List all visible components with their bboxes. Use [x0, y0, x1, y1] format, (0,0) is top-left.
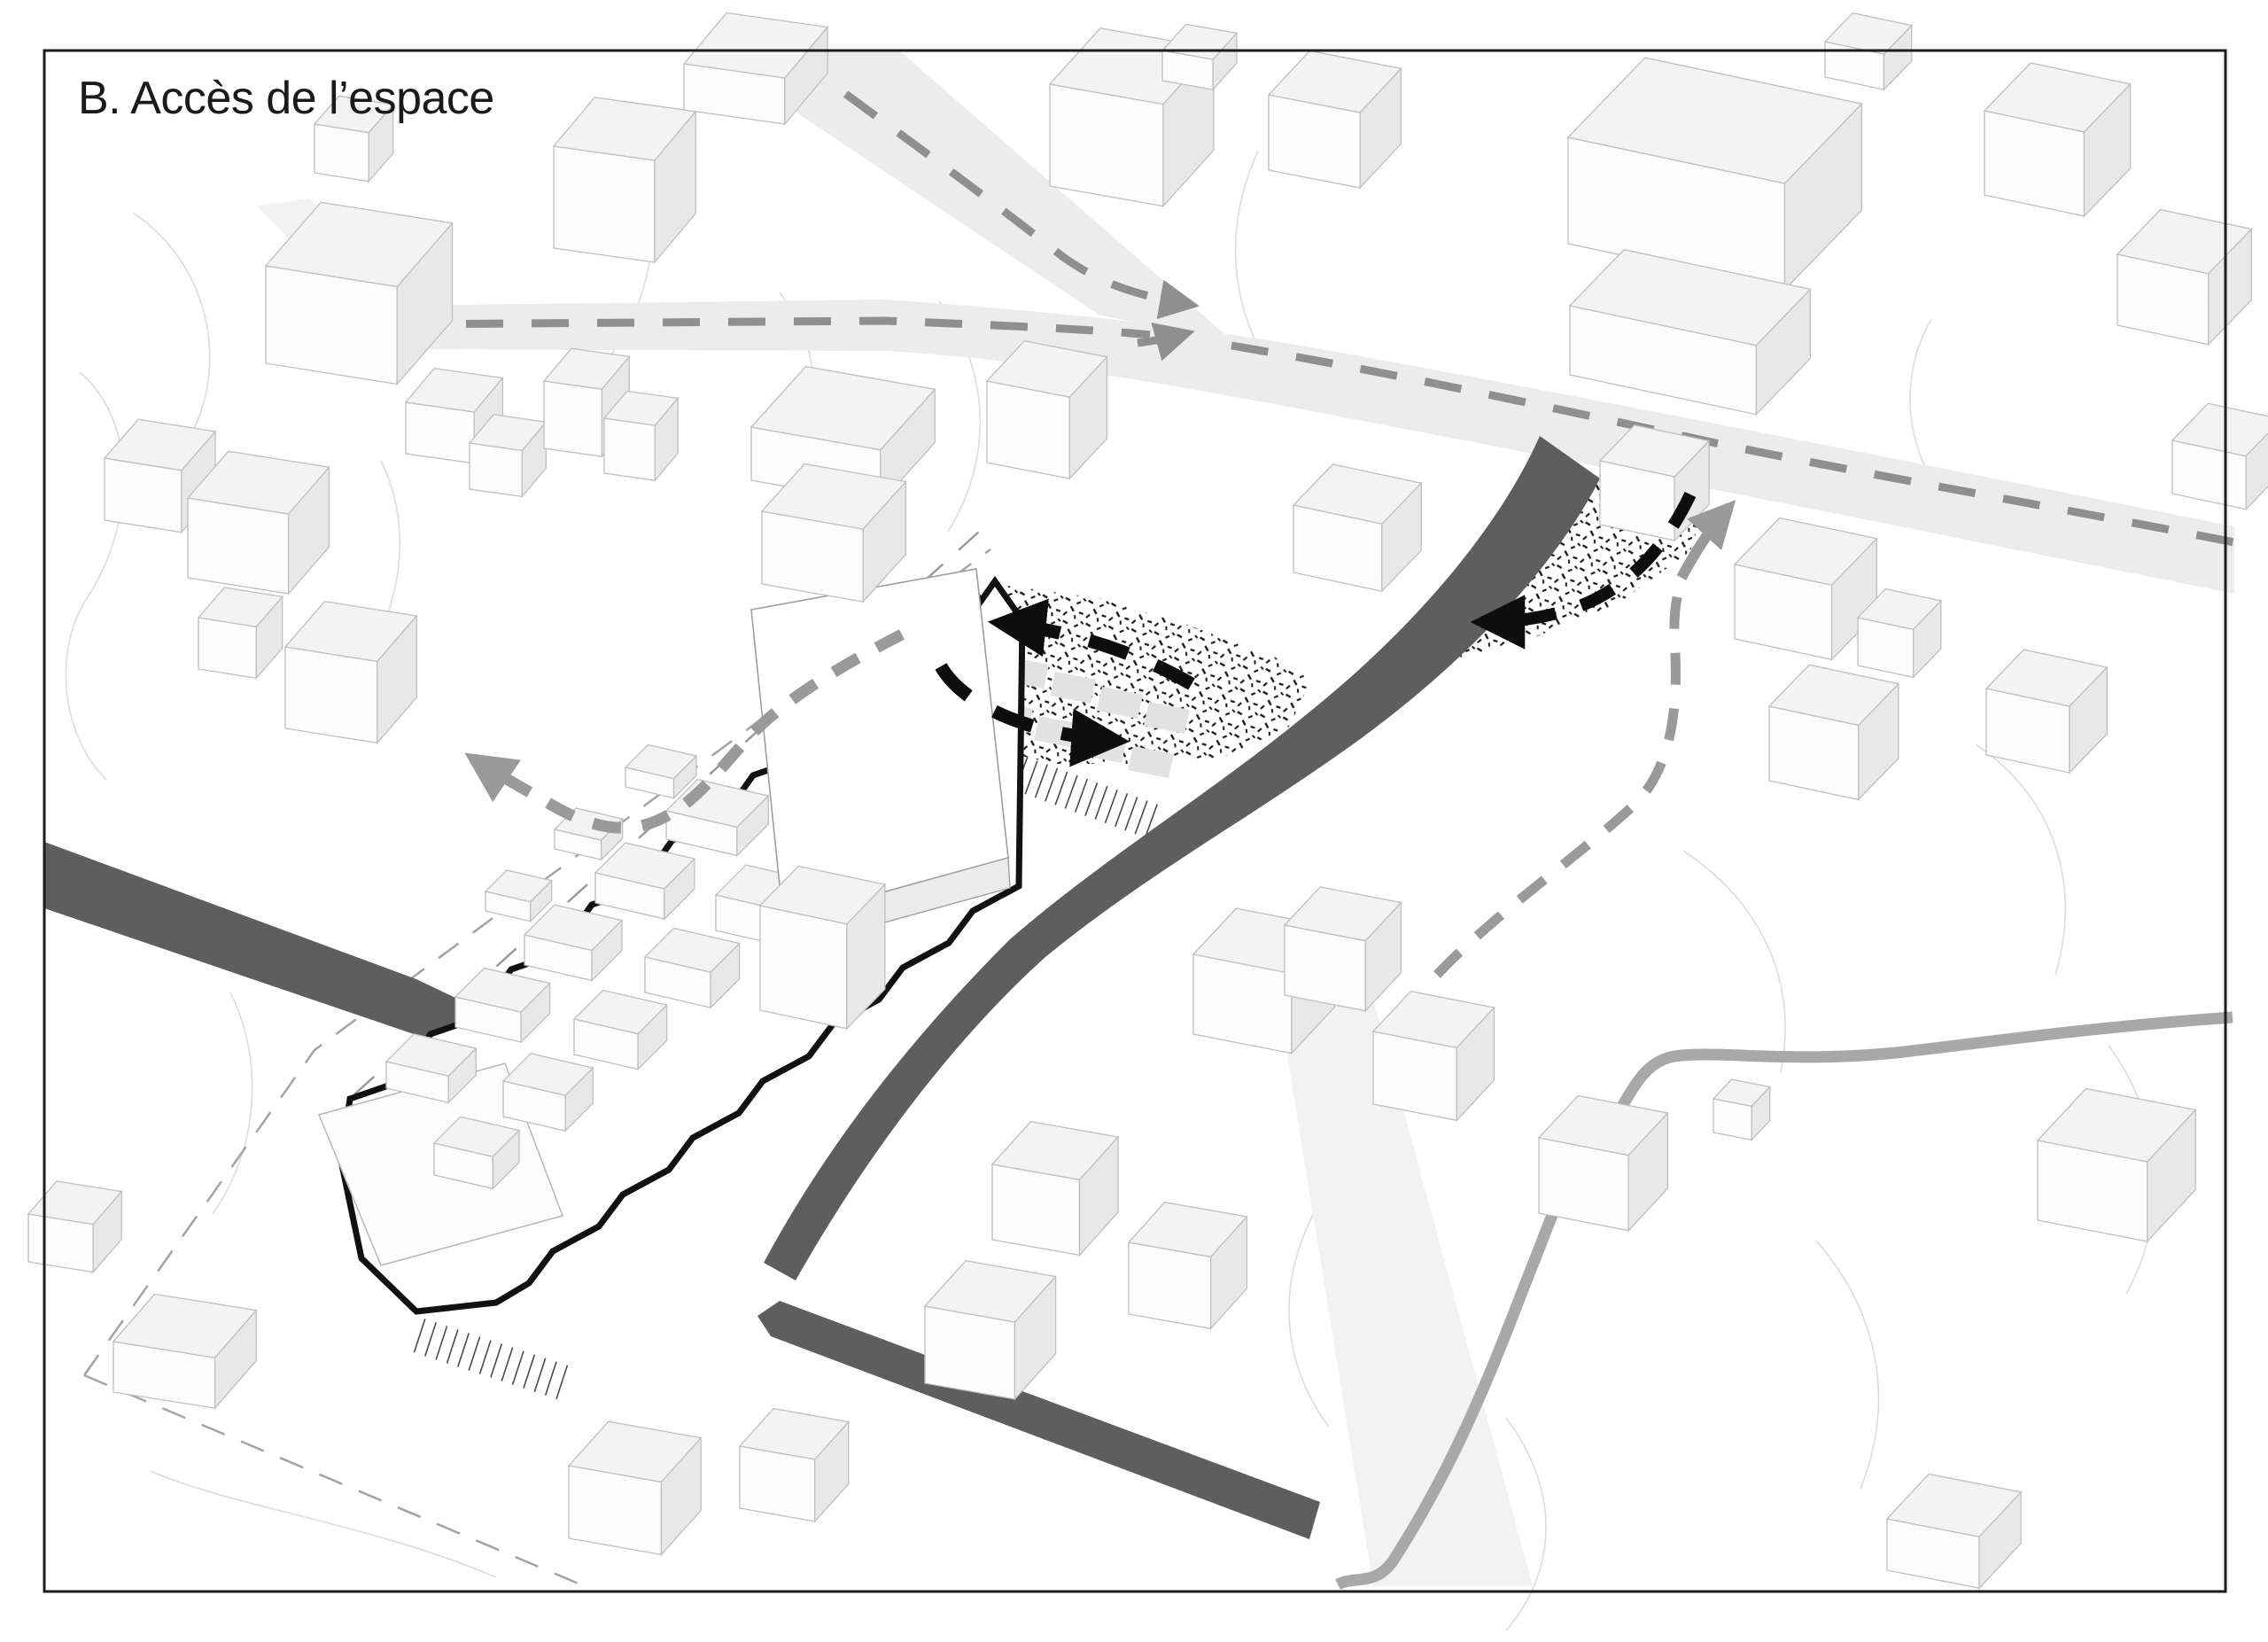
stair-hatch-line: [1106, 790, 1118, 823]
context-buildings-shape: [188, 498, 289, 594]
context-buildings-shape: [105, 458, 182, 533]
main-building-roof: [751, 569, 1008, 920]
site-tower-block: [760, 866, 885, 1028]
stair-hatch-line: [1025, 761, 1037, 795]
road-surfaces-light: [257, 51, 2234, 1586]
stair-hatch-line: [1135, 800, 1147, 834]
stair-hatch-line: [1085, 782, 1098, 816]
stair-hatch-line: [425, 1322, 436, 1356]
project-site: [319, 569, 1022, 1311]
boundary-southwest: [84, 1375, 585, 1586]
stair-hatch-line: [546, 1362, 556, 1396]
stair-hatch-line: [491, 1344, 501, 1378]
stair-hatch-line: [1045, 768, 1058, 802]
stair-hatch-line: [501, 1348, 512, 1381]
stair-hatch-line: [556, 1366, 567, 1399]
context-buildings-shape: [285, 647, 377, 743]
figure-title: B. Accès de l’espace: [78, 73, 494, 124]
context-buildings: [28, 13, 2268, 1589]
stair-hatch-line: [1125, 797, 1138, 830]
context-buildings-shape: [198, 618, 256, 678]
stair-hatch-line: [513, 1351, 524, 1385]
street-west-segment: [44, 842, 496, 1050]
context-buildings-shape: [544, 381, 602, 456]
stair-hatch-line: [414, 1319, 424, 1352]
context-buildings-shape: [470, 443, 522, 496]
context-buildings-shape: [1129, 1242, 1211, 1328]
stair-hatch-line: [534, 1358, 545, 1392]
stair-hatch-line: [1076, 779, 1088, 813]
site-access-axonometric-diagram: B. Accès de l’espace: [0, 0, 2268, 1642]
stair-hatch-line: [1115, 793, 1128, 827]
site-tower-block-shape: [760, 906, 847, 1029]
context-buildings-shape: [406, 402, 474, 463]
stair-hatch-line: [447, 1329, 458, 1363]
context-buildings-shape: [315, 124, 369, 182]
context-buildings-shape: [987, 381, 1069, 479]
figure-page: B. Accès de l’espace: [0, 0, 2268, 1642]
stair-hatch-line: [458, 1333, 469, 1366]
stair-hatch-line: [436, 1326, 447, 1359]
stair-hatch-line: [1055, 772, 1068, 805]
stair-hatch-line: [480, 1340, 491, 1374]
stair-hatch-line: [1036, 765, 1048, 798]
context-buildings-shape: [1050, 84, 1163, 206]
context-buildings-shape: [554, 146, 655, 262]
stair-hatch-line: [1095, 786, 1107, 820]
stair-hatch-line: [469, 1336, 479, 1370]
stair-hatch-line: [1065, 775, 1077, 809]
stair-hatch-line: [524, 1355, 534, 1389]
context-buildings-shape: [604, 418, 655, 480]
